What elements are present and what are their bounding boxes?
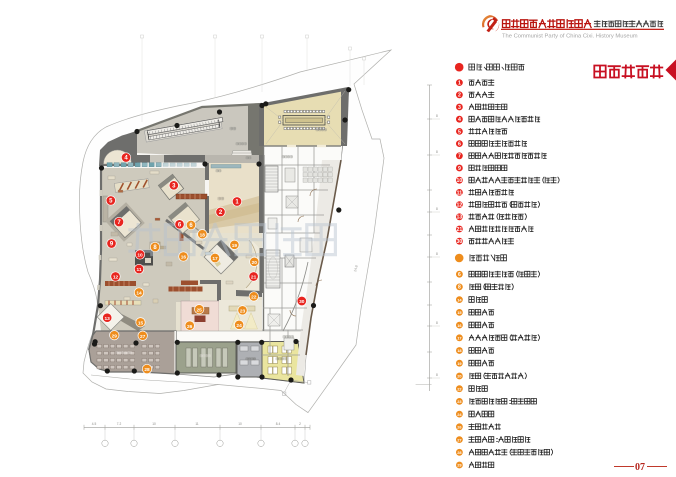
svg-text:14: 14 bbox=[136, 291, 142, 297]
svg-text:10: 10 bbox=[457, 178, 463, 184]
svg-text:13: 13 bbox=[457, 215, 463, 221]
svg-text:6: 6 bbox=[458, 272, 461, 278]
svg-text:19: 19 bbox=[232, 243, 238, 249]
svg-text:8: 8 bbox=[436, 321, 438, 325]
svg-text:26: 26 bbox=[187, 324, 193, 330]
svg-text:17: 17 bbox=[212, 256, 218, 262]
svg-text:17: 17 bbox=[457, 336, 461, 341]
svg-text:6: 6 bbox=[458, 142, 461, 148]
svg-text:7.2: 7.2 bbox=[117, 422, 122, 426]
svg-text:23: 23 bbox=[240, 309, 246, 315]
svg-text:21: 21 bbox=[251, 275, 257, 281]
svg-text:29: 29 bbox=[112, 333, 118, 339]
svg-text:5: 5 bbox=[458, 129, 461, 135]
svg-text:2: 2 bbox=[458, 93, 461, 99]
svg-text:22: 22 bbox=[251, 295, 257, 301]
svg-text:4.5: 4.5 bbox=[92, 422, 97, 426]
svg-text:30: 30 bbox=[457, 239, 463, 245]
svg-text:27: 27 bbox=[140, 334, 146, 340]
svg-text:1: 1 bbox=[458, 81, 461, 87]
svg-text:10: 10 bbox=[152, 422, 156, 426]
svg-text:10: 10 bbox=[238, 422, 242, 426]
svg-text:11: 11 bbox=[136, 267, 141, 273]
svg-text:3: 3 bbox=[458, 105, 461, 111]
svg-text:12: 12 bbox=[113, 275, 119, 281]
svg-text:15: 15 bbox=[138, 321, 144, 327]
svg-text:25: 25 bbox=[197, 307, 203, 313]
svg-text:11: 11 bbox=[457, 190, 463, 196]
svg-text:8: 8 bbox=[436, 150, 438, 154]
svg-text:The Communist Party of China C: The Communist Party of China Cixi. Histo… bbox=[502, 34, 638, 40]
svg-text:4: 4 bbox=[458, 117, 461, 123]
svg-text:20: 20 bbox=[457, 374, 461, 379]
svg-text:20: 20 bbox=[252, 260, 258, 266]
svg-text:28: 28 bbox=[144, 367, 150, 373]
svg-text:7: 7 bbox=[458, 154, 461, 160]
svg-text:8: 8 bbox=[436, 114, 438, 118]
svg-text:11: 11 bbox=[195, 422, 199, 426]
svg-text:8.4: 8.4 bbox=[276, 422, 281, 426]
svg-text:16: 16 bbox=[181, 255, 187, 261]
svg-text:30: 30 bbox=[299, 299, 305, 305]
svg-text:8: 8 bbox=[436, 207, 438, 211]
svg-text:21: 21 bbox=[457, 227, 463, 233]
svg-text:2: 2 bbox=[299, 422, 301, 426]
svg-text:8: 8 bbox=[436, 373, 438, 377]
svg-text:8: 8 bbox=[458, 285, 461, 291]
svg-text:8: 8 bbox=[436, 252, 438, 256]
svg-text:13: 13 bbox=[105, 316, 111, 322]
svg-text:07: 07 bbox=[635, 462, 645, 473]
svg-text:10: 10 bbox=[137, 253, 143, 259]
svg-text:24: 24 bbox=[236, 323, 242, 329]
svg-text:12: 12 bbox=[457, 203, 463, 209]
svg-text:18: 18 bbox=[200, 232, 206, 238]
svg-text:27: 27 bbox=[457, 437, 461, 442]
svg-text:9: 9 bbox=[458, 166, 461, 172]
